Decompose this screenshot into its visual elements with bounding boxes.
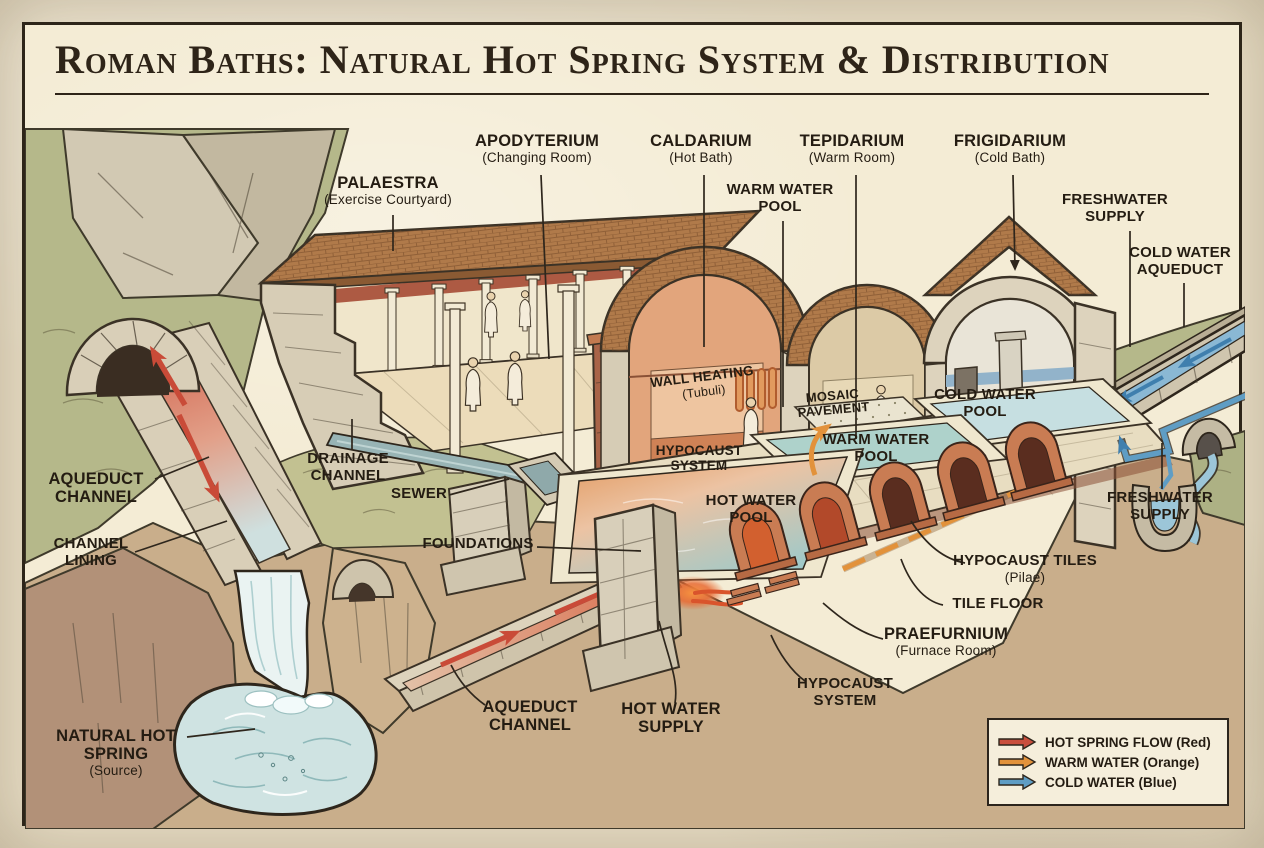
title-rule	[55, 93, 1209, 95]
label-freshwater-supply-right: FRESHWATER SUPPLY	[1100, 490, 1220, 523]
label-channel-lining: CHANNEL LINING	[36, 536, 146, 569]
label-tepidarium: TEPIDARIUM (Warm Room)	[782, 132, 922, 166]
label-hypocaust-tiles: HYPOCAUST TILES (Pilae)	[940, 553, 1110, 585]
legend-item-hot-spring-flow: HOT SPRING FLOW (Red)	[997, 734, 1219, 750]
label-apodyterium: APODYTERIUM (Changing Room)	[457, 132, 617, 166]
label-hot-water-pool: HOT WATER POOL	[696, 493, 806, 526]
legend: HOT SPRING FLOW (Red) WARM WATER (Orange…	[987, 718, 1229, 806]
label-foundations: FOUNDATIONS	[408, 536, 548, 553]
label-cold-water-pool: COLD WATER POOL	[920, 387, 1050, 420]
label-sewer: SEWER	[374, 486, 464, 503]
label-freshwater-supply-top: FRESHWATER SUPPLY	[1055, 192, 1175, 225]
cold-water-arrow-icon	[997, 774, 1037, 790]
label-aqueduct-channel-bottom: AQUEDUCT CHANNEL	[465, 698, 595, 734]
label-aqueduct-channel-left: AQUEDUCT CHANNEL	[26, 470, 166, 506]
hot-spring-flow-arrow-icon	[997, 734, 1037, 750]
label-warm-water-pool-top: WARM WATER POOL	[725, 182, 835, 215]
label-caldarium: CALDARIUM (Hot Bath)	[631, 132, 771, 166]
label-praefurnium: PRAEFURNIUM (Furnace Room)	[851, 625, 1041, 659]
poster-page: Roman Baths: Natural Hot Spring System &…	[0, 0, 1264, 848]
legend-item-warm-water: WARM WATER (Orange)	[997, 754, 1219, 770]
label-hypocaust-system-bottom: HYPOCAUST SYSTEM	[790, 676, 900, 709]
warm-water-arrow-icon	[997, 754, 1037, 770]
label-drainage-channel: DRAINAGE CHANNEL	[293, 451, 403, 484]
label-warm-water-pool-center: WARM WATER POOL	[816, 432, 936, 465]
label-hot-water-supply: HOT WATER SUPPLY	[611, 700, 731, 736]
page-title: Roman Baths: Natural Hot Spring System &…	[55, 36, 1215, 83]
label-tile-floor: TILE FLOOR	[943, 596, 1053, 613]
label-natural-hot-spring: NATURAL HOT SPRING (Source)	[46, 727, 186, 779]
label-hypocaust-system-caldarium: HYPOCAUST SYSTEM	[644, 444, 754, 474]
label-palaestra: PALAESTRA (Exercise Courtyard)	[303, 174, 473, 208]
legend-item-cold-water: COLD WATER (Blue)	[997, 774, 1219, 790]
label-cold-water-aqueduct: COLD WATER AQUEDUCT	[1120, 245, 1240, 278]
label-frigidarium: FRIGIDARIUM (Cold Bath)	[940, 132, 1080, 166]
